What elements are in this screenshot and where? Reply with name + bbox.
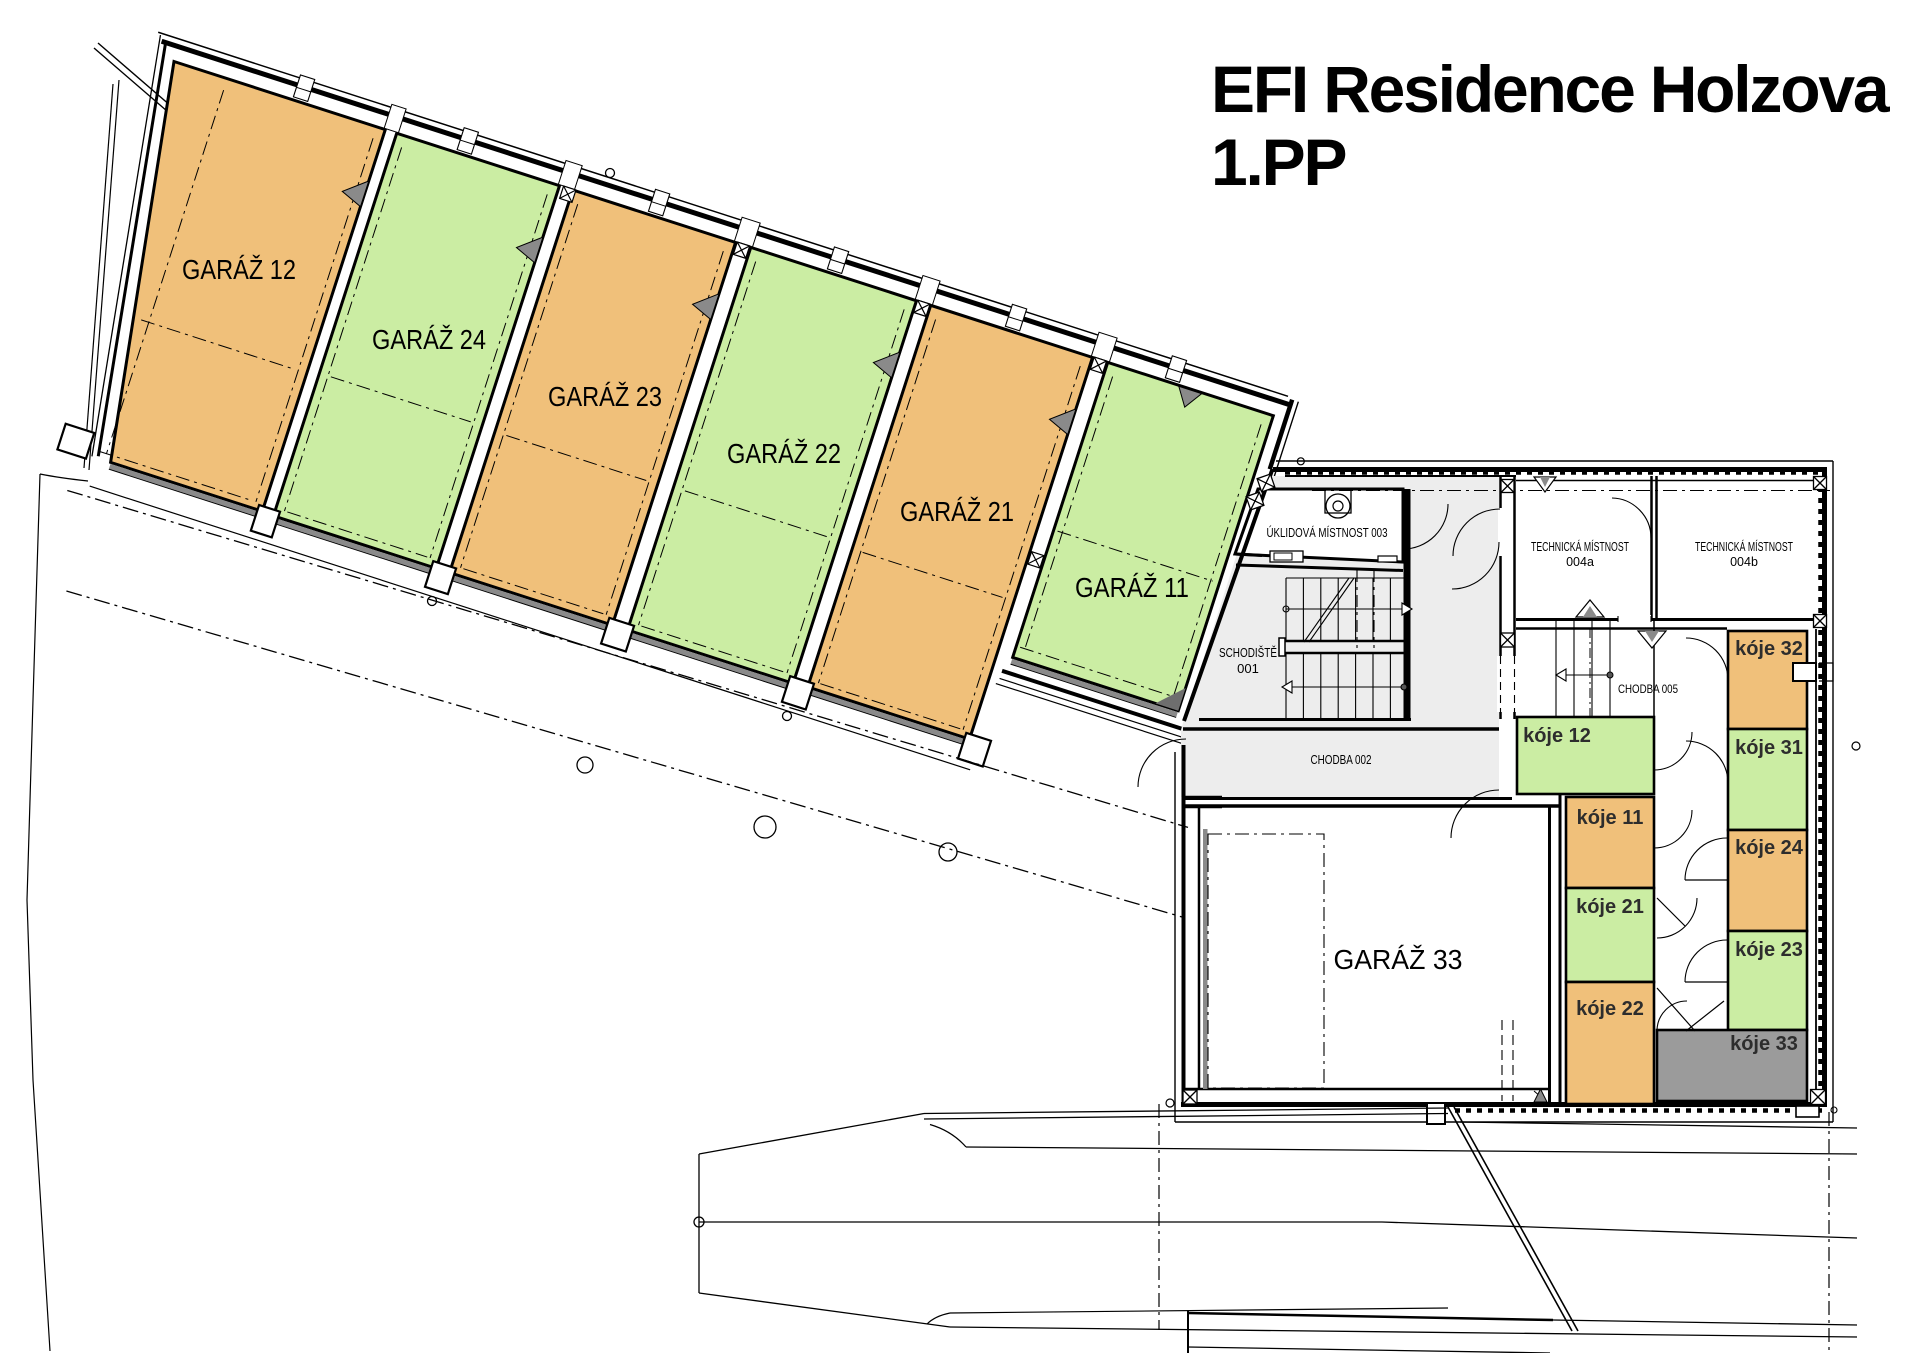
svg-text:004a: 004a: [1566, 555, 1594, 569]
svg-text:kóje 31: kóje 31: [1735, 737, 1803, 759]
svg-text:kóje 23: kóje 23: [1735, 939, 1803, 961]
svg-text:EFI Residence Holzova: EFI Residence Holzova: [1211, 52, 1891, 126]
svg-text:GARÁŽ 22: GARÁŽ 22: [727, 438, 841, 469]
svg-text:kóje 21: kóje 21: [1576, 896, 1644, 918]
svg-text:kóje 32: kóje 32: [1735, 638, 1803, 660]
svg-text:kóje 12: kóje 12: [1523, 725, 1591, 747]
svg-text:004b: 004b: [1730, 555, 1758, 569]
svg-text:GARÁŽ 23: GARÁŽ 23: [548, 381, 662, 412]
svg-text:kóje 24: kóje 24: [1735, 837, 1804, 859]
svg-text:GARÁŽ 24: GARÁŽ 24: [372, 324, 486, 355]
svg-text:GARÁŽ 21: GARÁŽ 21: [900, 496, 1014, 527]
svg-text:TECHNICKÁ MÍSTNOST: TECHNICKÁ MÍSTNOST: [1695, 539, 1793, 554]
svg-text:TECHNICKÁ MÍSTNOST: TECHNICKÁ MÍSTNOST: [1531, 539, 1629, 554]
svg-text:001: 001: [1237, 661, 1259, 676]
svg-text:CHODBA 005: CHODBA 005: [1618, 682, 1678, 696]
svg-text:SCHODIŠTĚ: SCHODIŠTĚ: [1219, 645, 1277, 660]
svg-text:kóje 11: kóje 11: [1577, 807, 1644, 829]
svg-text:1.PP: 1.PP: [1211, 125, 1345, 199]
svg-text:CHODBA 002: CHODBA 002: [1311, 752, 1372, 767]
svg-text:GARÁŽ 11: GARÁŽ 11: [1075, 572, 1189, 603]
svg-text:ÚKLIDOVÁ MÍSTNOST 003: ÚKLIDOVÁ MÍSTNOST 003: [1267, 525, 1388, 540]
svg-text:kóje 22: kóje 22: [1576, 998, 1644, 1020]
svg-text:GARÁŽ 12: GARÁŽ 12: [182, 254, 296, 285]
svg-text:kóje 33: kóje 33: [1730, 1033, 1798, 1055]
svg-text:GARÁŽ 33: GARÁŽ 33: [1334, 944, 1463, 975]
